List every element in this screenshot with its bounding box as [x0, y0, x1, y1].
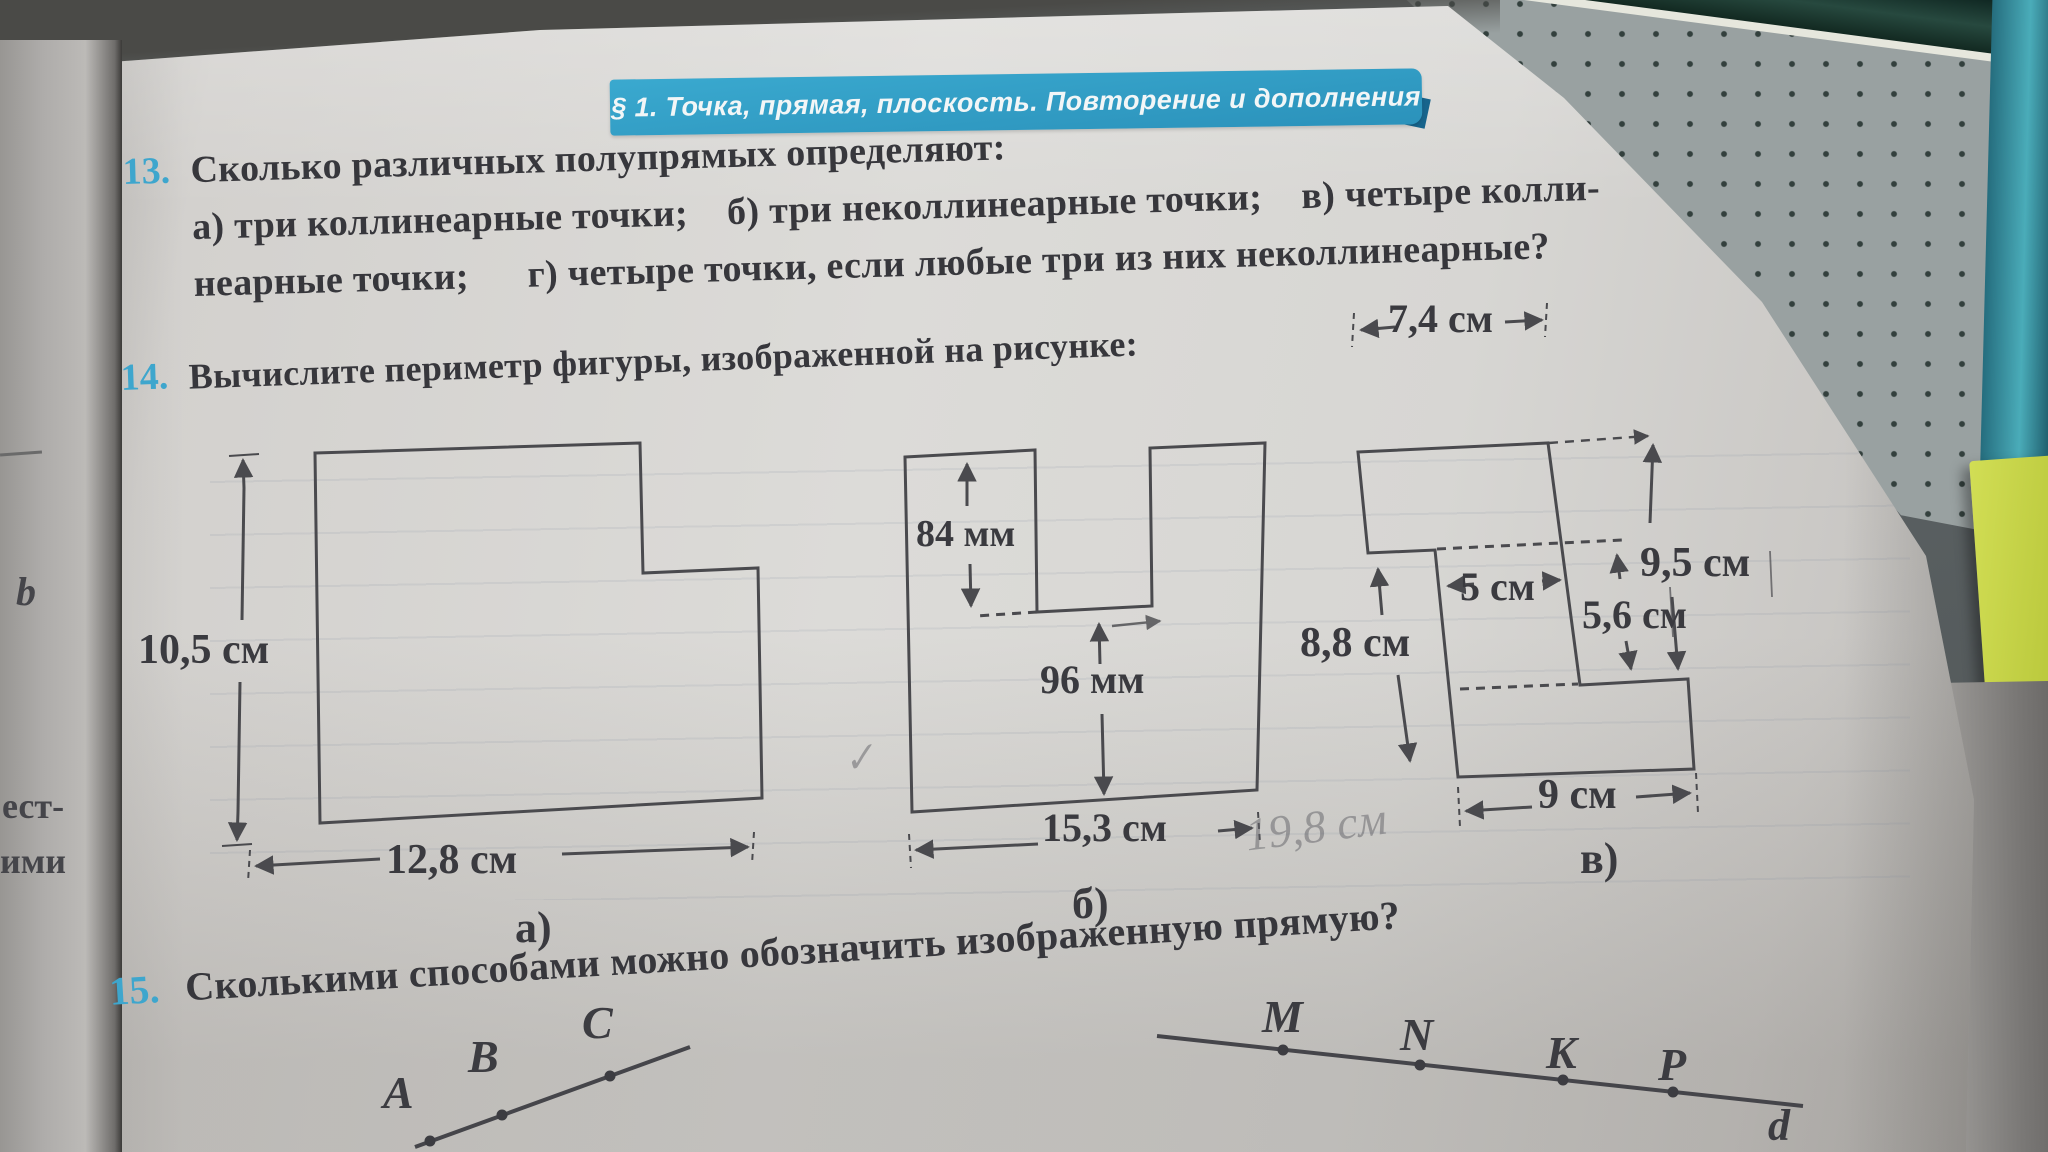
point-k-label: K: [1546, 1026, 1577, 1079]
figure-a: 10,5 см 12,8 см а): [130, 430, 830, 990]
previous-page-sliver: ест- ими b: [0, 40, 122, 1152]
figure-b-width-label: 15,3 см: [1042, 804, 1167, 851]
margin-fragment: ими: [0, 840, 66, 882]
figure-a-width-label: 12,8 см: [386, 836, 517, 884]
figure-a-height-label: 10,5 см: [138, 626, 269, 674]
point-b-label: B: [468, 1030, 499, 1083]
book-cover-band: [1979, 0, 2048, 501]
point-b-dot: [497, 1110, 508, 1121]
textbook-photo-scene: ест- ими b § 1. Точка, прямая, плоскость…: [0, 0, 2048, 1152]
point-n-label: N: [1400, 1008, 1433, 1061]
margin-fragment: b: [16, 568, 36, 615]
point-a-label: A: [383, 1066, 414, 1119]
sticky-note: [1969, 455, 2048, 716]
point-c-dot: [605, 1071, 616, 1082]
figure-v-left-label: 8,8 см: [1300, 619, 1410, 667]
point-a-dot: [425, 1136, 436, 1147]
line-mnkp-drawing: [1135, 1008, 1845, 1152]
figure-a-drawing: [130, 430, 830, 990]
problem-14-number: 14.: [120, 354, 169, 400]
problem-15-number: 15.: [108, 965, 161, 1015]
point-c-label: C: [582, 996, 613, 1049]
line-figure-mnkp: [1135, 1008, 1845, 1152]
figure-v-step-label: 5,6 см: [1582, 591, 1687, 638]
point-n-dot: [1415, 1060, 1426, 1071]
figure-b-notch-label: 84 мм: [916, 512, 1015, 556]
figure-b-inner-label: 96 мм: [1040, 656, 1145, 703]
point-m-dot: [1278, 1045, 1289, 1056]
figure-v-right-label: 9,5 см: [1640, 539, 1750, 587]
figure-v-inner-label: 5 см: [1460, 563, 1535, 610]
figure-v-bottom-label: 9 см: [1538, 771, 1617, 819]
point-m-label: M: [1262, 990, 1303, 1043]
figure-v-top-label: 7,4 см: [1388, 295, 1493, 342]
problem-13-number: 13.: [122, 149, 171, 194]
margin-line-mark: [0, 451, 42, 457]
point-p-label: P: [1658, 1038, 1686, 1091]
figure-a-outline: [315, 443, 762, 823]
figure-b-outline: [905, 443, 1265, 812]
line-d-label: d: [1768, 1100, 1790, 1151]
figure-v-label: в): [1580, 833, 1618, 884]
margin-fragment: ест-: [2, 785, 64, 827]
